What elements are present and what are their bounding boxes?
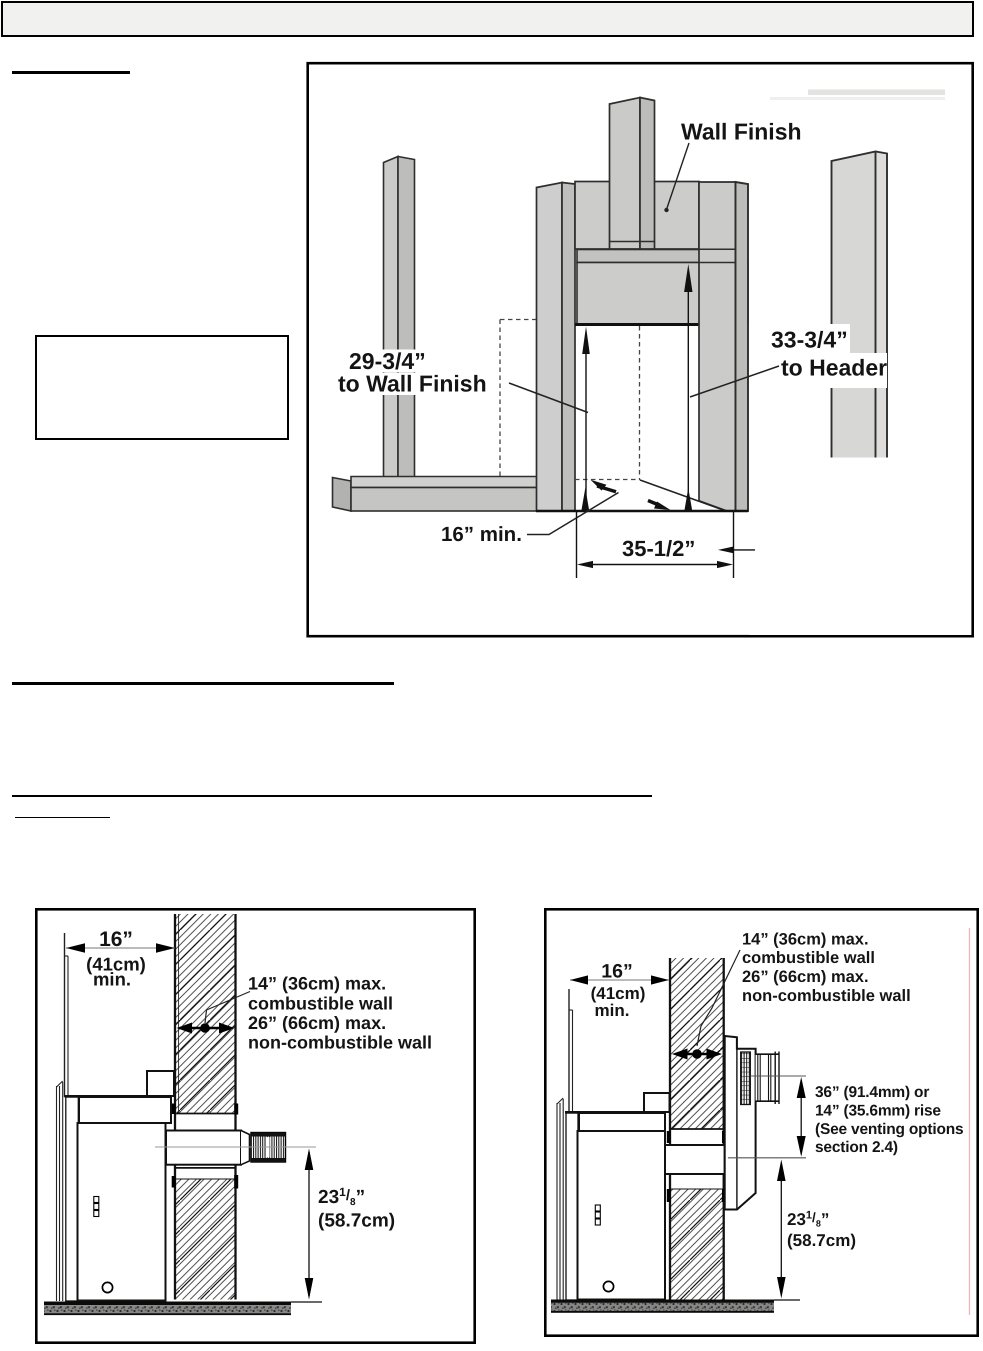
svg-text:36” (91.4mm) or: 36” (91.4mm) or	[815, 1084, 929, 1101]
svg-text:14” (36cm) max.: 14” (36cm) max.	[742, 931, 869, 949]
svg-text:33-3/4”: 33-3/4”	[771, 327, 848, 353]
svg-text:(See venting options: (See venting options	[815, 1121, 963, 1138]
svg-text:26” (66cm) max.: 26” (66cm) max.	[248, 1013, 386, 1033]
svg-text:non-combustible wall: non-combustible wall	[742, 987, 911, 1005]
svg-text:14” (36cm) max.: 14” (36cm) max.	[248, 974, 386, 994]
svg-text:min.: min.	[93, 969, 131, 990]
svg-text:combustible wall: combustible wall	[248, 994, 393, 1014]
svg-text:combustible wall: combustible wall	[742, 949, 875, 967]
svg-text:(58.7cm): (58.7cm)	[787, 1231, 856, 1250]
svg-text:Wall Finish: Wall Finish	[681, 119, 802, 145]
svg-text:16”: 16”	[99, 928, 133, 951]
svg-text:min.: min.	[595, 1001, 630, 1020]
svg-text:(58.7cm): (58.7cm)	[318, 1211, 395, 1232]
svg-text:non-combustible wall: non-combustible wall	[248, 1033, 432, 1053]
svg-text:16”: 16”	[601, 961, 632, 983]
svg-text:26” (66cm) max.: 26” (66cm) max.	[742, 968, 869, 986]
svg-text:14” (35.6mm) rise: 14” (35.6mm) rise	[815, 1103, 941, 1120]
svg-text:16” min.: 16” min.	[441, 523, 522, 546]
svg-text:35-1/2”: 35-1/2”	[622, 536, 695, 561]
svg-text:to Wall Finish: to Wall Finish	[338, 371, 487, 397]
svg-text:section 2.4): section 2.4)	[815, 1139, 898, 1156]
svg-text:to Header: to Header	[781, 355, 887, 381]
